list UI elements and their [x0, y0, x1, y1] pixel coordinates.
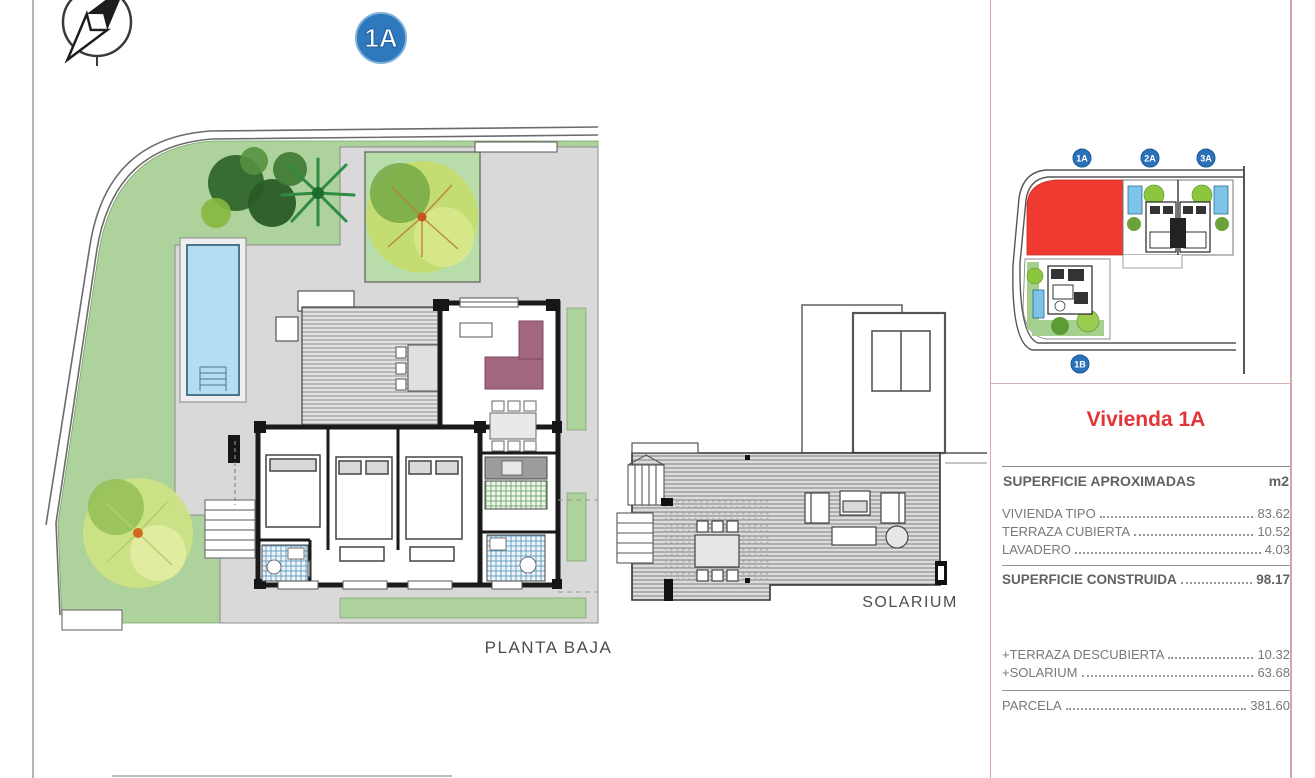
row-label: LAVADERO — [1002, 541, 1071, 559]
dot-leader — [1066, 708, 1247, 710]
panel-divider-line — [990, 0, 991, 778]
site-badge-1a: 1A — [1076, 154, 1088, 164]
panel-horizontal-rule — [991, 383, 1290, 384]
dot-leader — [1181, 582, 1252, 584]
extra-row: +SOLARIUM 63.68 — [1002, 664, 1290, 682]
rule-bottom — [1002, 690, 1290, 691]
dot-leader — [1168, 657, 1253, 659]
roof-outline — [802, 305, 945, 453]
dot-leader — [1075, 552, 1261, 554]
compass-icon — [42, 0, 152, 80]
kitchen — [485, 457, 547, 509]
info-panel: Vivienda 1A SUPERFICIE APROXIMADAS m2 VI… — [1002, 392, 1290, 715]
extra-value: 63.68 — [1257, 664, 1290, 682]
total-label: SUPERFICIE CONSTRUIDA — [1002, 570, 1177, 590]
header-label: SUPERFICIE APROXIMADAS — [1003, 473, 1195, 489]
dining-table — [490, 401, 536, 451]
info-title: Vivienda 1A — [1002, 408, 1290, 432]
site-plan: 1A 2A 3A 1B — [1000, 140, 1295, 380]
bathroom-left — [262, 545, 308, 581]
deck-step — [632, 443, 698, 453]
tree-large-top — [366, 161, 478, 273]
plot-1a-highlight — [1027, 180, 1123, 255]
bottom-green-strip — [340, 598, 586, 618]
right-border-line — [1290, 0, 1292, 778]
plots-2a-3a — [1123, 180, 1233, 268]
left-border-line — [32, 0, 34, 778]
side-green-strip — [567, 493, 586, 561]
tree-large-bottom — [83, 478, 193, 588]
extra-row: +TERRAZA DESCUBIERTA 10.32 — [1002, 646, 1290, 664]
plan-sheet: 1A — [0, 0, 1315, 778]
table-row: VIVIENDA TIPO 83.62 — [1002, 505, 1290, 523]
row-value: 83.62 — [1257, 505, 1290, 523]
solarium-plan — [615, 295, 987, 615]
table-row: LAVADERO 4.03 — [1002, 541, 1290, 559]
tv-unit — [460, 323, 492, 337]
plot-step — [1123, 255, 1182, 268]
site-badge-3a: 3A — [1200, 154, 1212, 164]
plot-1b — [1023, 259, 1110, 339]
bathroom-right — [487, 535, 545, 581]
entry-stairs — [205, 500, 255, 558]
row-value: 4.03 — [1265, 541, 1290, 559]
site-badge-2a: 2A — [1144, 154, 1156, 164]
solarium-caption: SOLARIUM — [830, 594, 990, 612]
side-green-strip — [567, 308, 586, 430]
site-badge-1b: 1B — [1074, 360, 1086, 370]
gate — [62, 610, 122, 630]
rule-mid — [1002, 565, 1290, 566]
row-label: TERRAZA CUBIERTA — [1002, 523, 1130, 541]
total-row: SUPERFICIE CONSTRUIDA 98.17 — [1002, 570, 1290, 590]
planta-baja-plan — [40, 95, 605, 665]
parcela-label: PARCELA — [1002, 697, 1062, 715]
extra-label: +TERRAZA DESCUBIERTA — [1002, 646, 1164, 664]
header-unit: m2 — [1269, 473, 1289, 489]
parcela-value: 381.60 — [1250, 697, 1290, 715]
table-row: TERRAZA CUBIERTA 10.52 — [1002, 523, 1290, 541]
bottom-edge-mark — [112, 775, 452, 777]
dot-leader — [1134, 534, 1253, 536]
parcela-row: PARCELA 381.60 — [1002, 697, 1290, 715]
planta-baja-caption: PLANTA BAJA — [466, 638, 631, 658]
extra-value: 10.32 — [1257, 646, 1290, 664]
dot-leader — [1082, 675, 1254, 677]
row-label: VIVIENDA TIPO — [1002, 505, 1096, 523]
total-value: 98.17 — [1256, 570, 1290, 590]
row-value: 10.52 — [1257, 523, 1290, 541]
unit-badge-label: 1A — [364, 23, 397, 54]
table-header: SUPERFICIE APROXIMADAS m2 — [1002, 467, 1290, 497]
unit-badge: 1A — [355, 12, 407, 64]
pool — [180, 238, 246, 402]
roof-strip — [475, 142, 557, 152]
dot-leader — [1100, 516, 1254, 518]
extra-label: +SOLARIUM — [1002, 664, 1078, 682]
